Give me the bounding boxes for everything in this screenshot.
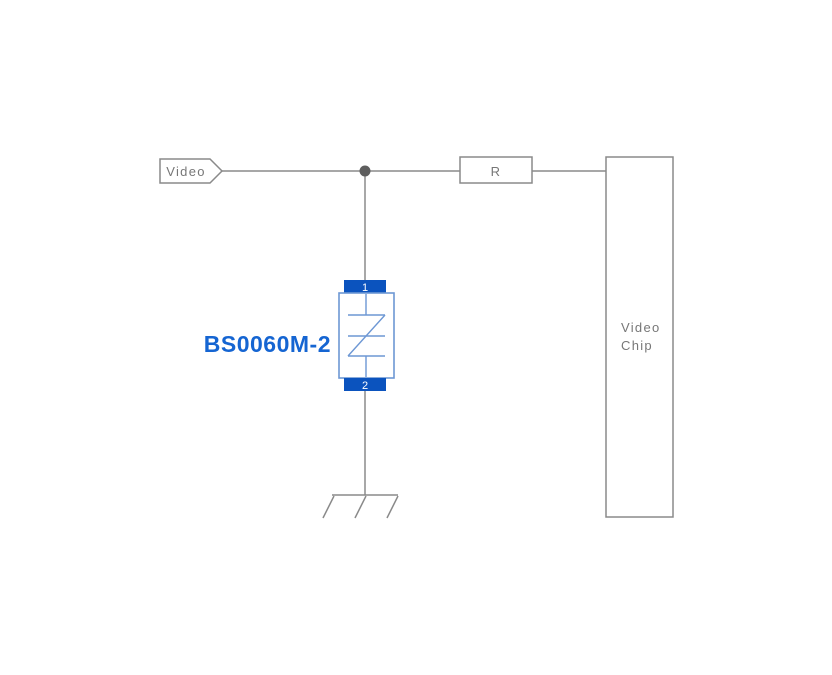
component-name-label: BS0060M-2 (204, 331, 331, 357)
video-chip-box (606, 157, 673, 517)
resistor: R (460, 157, 532, 183)
ground-hatch-2 (355, 496, 366, 518)
ground-hatch-3 (387, 496, 398, 518)
video-chip-label-line1: Video (621, 320, 661, 335)
ground-symbol (323, 495, 398, 518)
tvs-pin2-number: 2 (362, 380, 368, 392)
schematic-canvas: Video R Video Chip 1 (0, 0, 832, 675)
ground-hatch-1 (323, 496, 334, 518)
video-net-flag: Video (160, 159, 222, 183)
resistor-label: R (491, 164, 502, 179)
tvs-pin1-number: 1 (362, 282, 368, 294)
net-flag-label: Video (166, 164, 206, 179)
video-chip: Video Chip (606, 157, 673, 517)
video-chip-label-line2: Chip (621, 338, 653, 353)
circuit-diagram: Video R Video Chip 1 (0, 0, 832, 675)
tvs-component: 1 2 BS0060M-2 (204, 280, 394, 392)
junction-dot (360, 166, 371, 177)
